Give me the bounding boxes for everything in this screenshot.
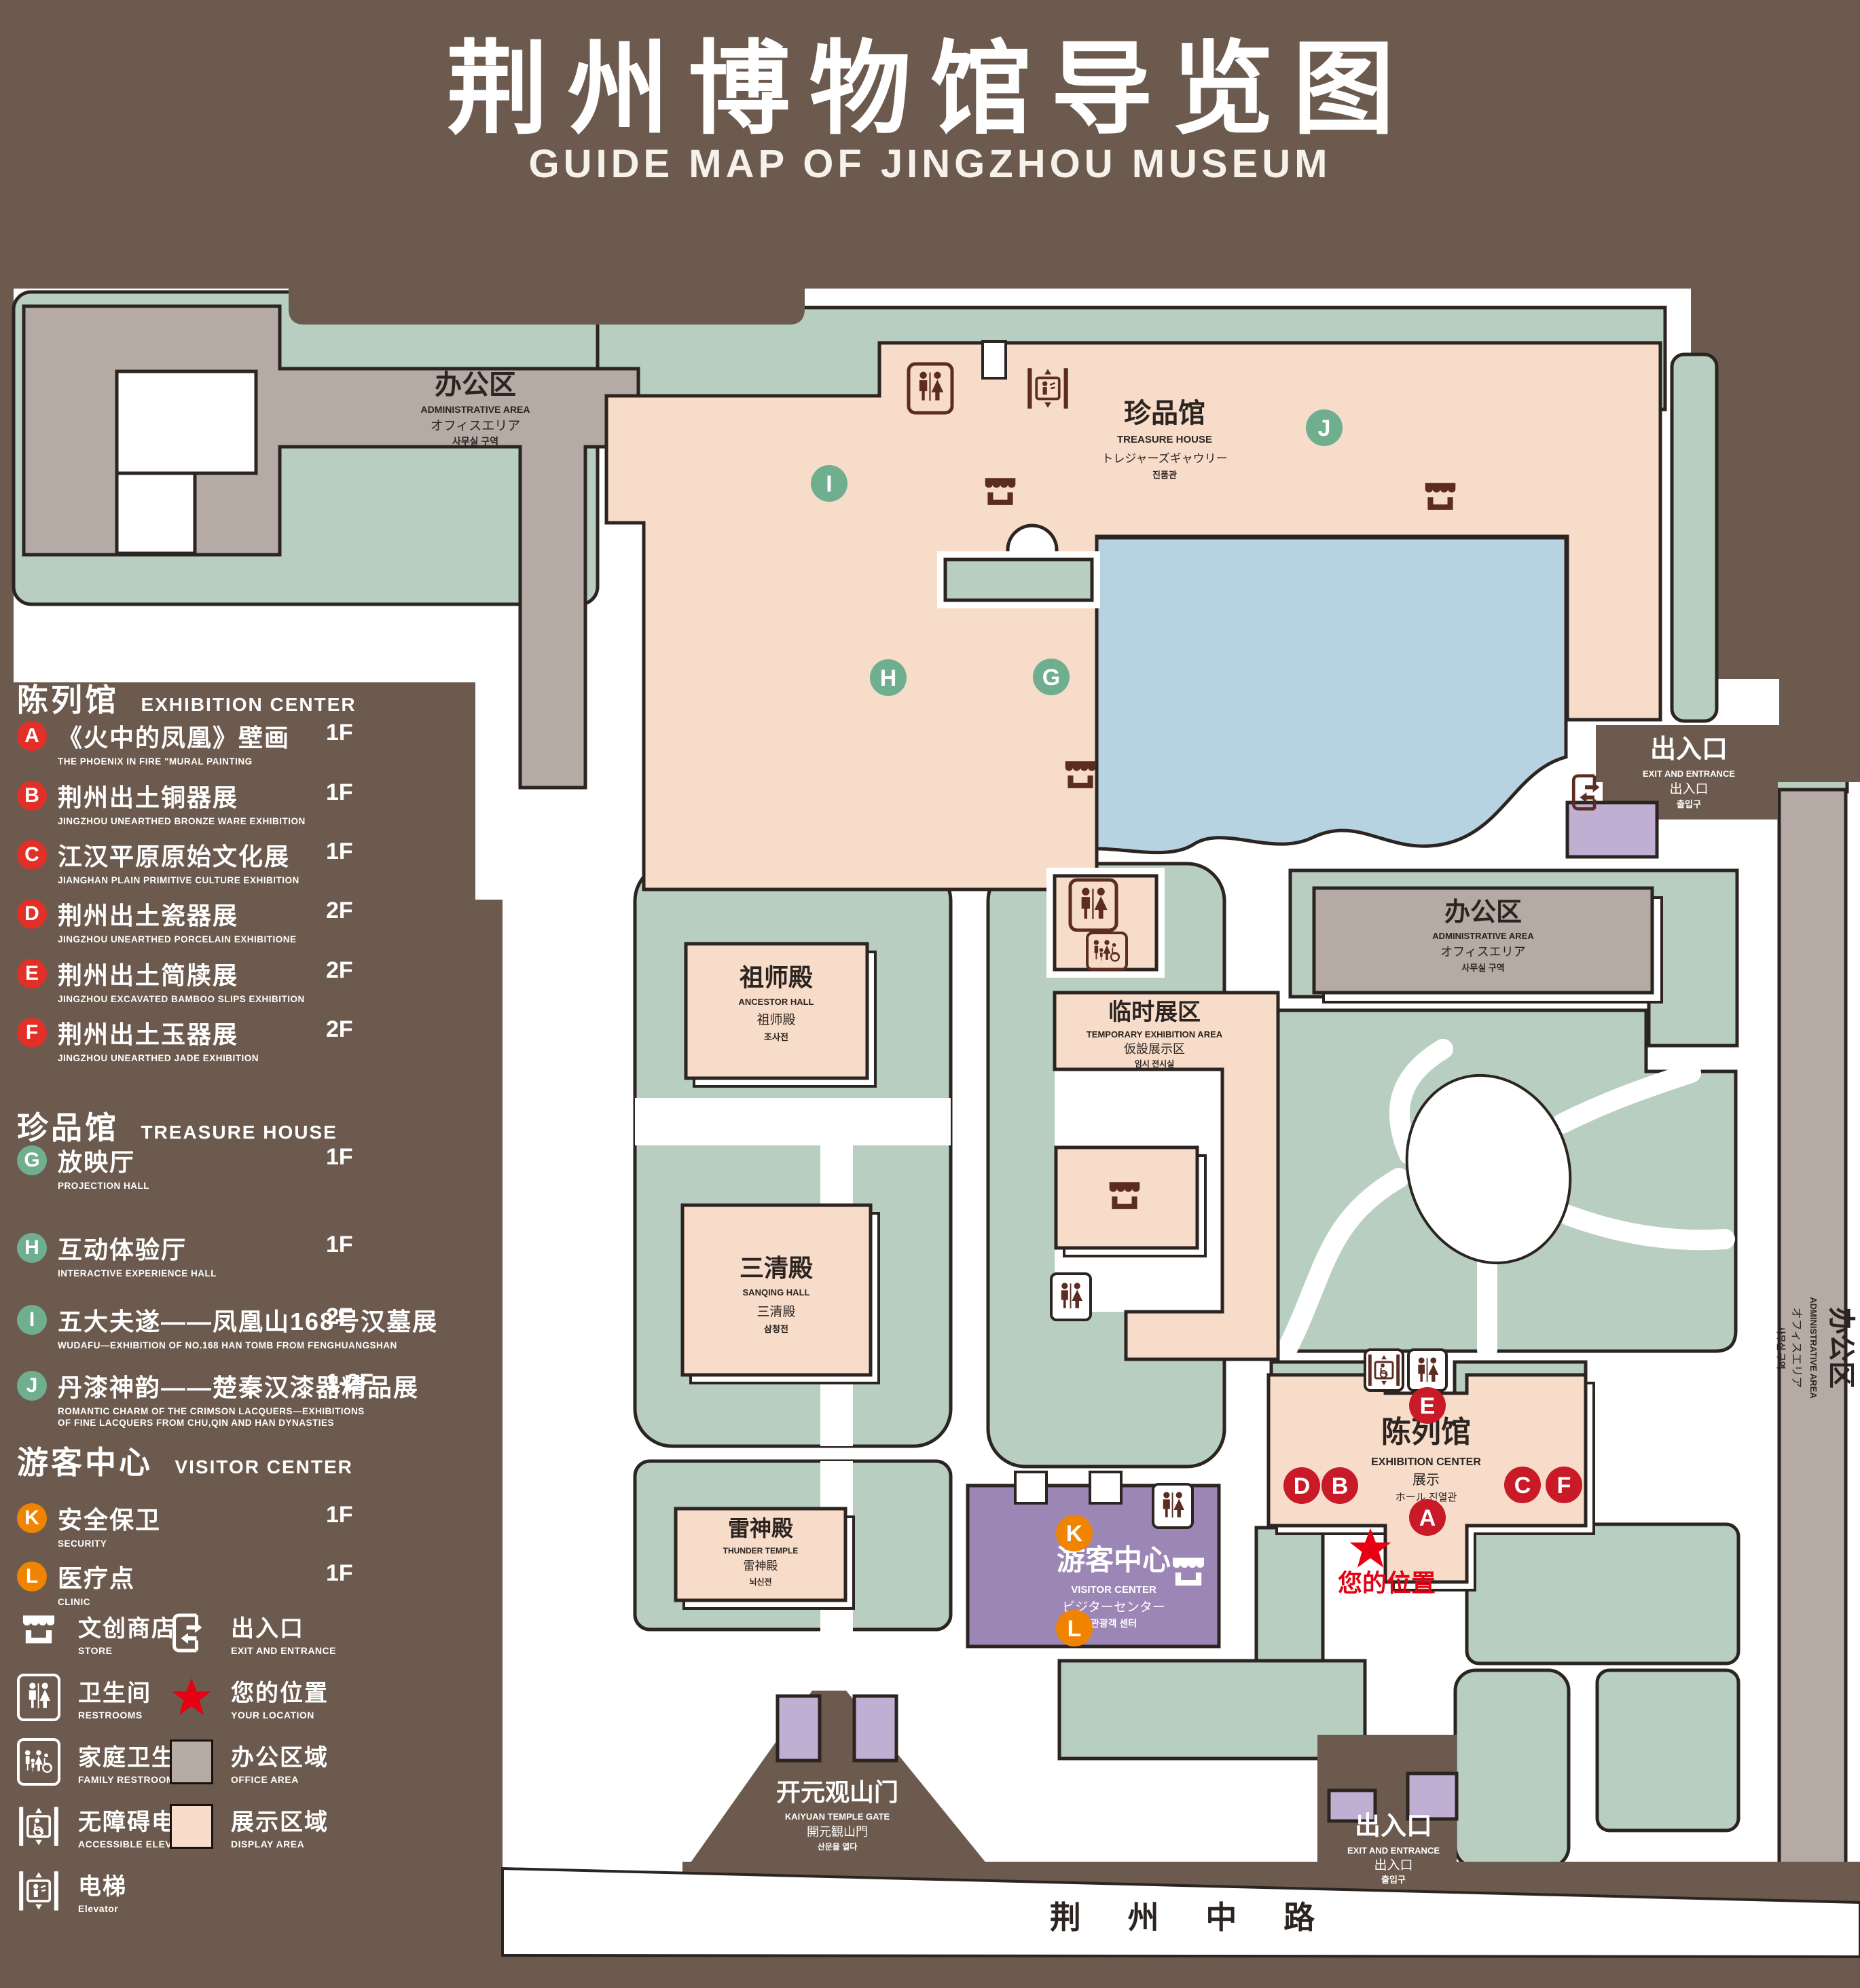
icon-label-zh: 电梯 [78,1868,127,1901]
item-floor: 2F [326,1016,353,1043]
item-floor: 2F [326,957,353,984]
item-en: THE PHOENIX IN FIRE "MURAL PAINTING [58,756,492,767]
admin-e-ja: オフィスエリア [1440,945,1526,959]
item-en: JINGZHOU UNEARTHED PORCELAIN EXHIBITIONE [58,934,492,944]
marker-letter: H [880,665,897,691]
item-zh: 放映厅 [58,1143,135,1178]
green-south-3 [1455,1670,1569,1867]
icon-label-en: OFFICE AREA [231,1774,329,1785]
item-en: WUDAFU—EXHIBITION OF NO.168 HAN TOMB FRO… [58,1340,492,1350]
gate-purple-right [854,1696,896,1761]
admin-strip-ko: 사무실 구역 [1776,1326,1786,1369]
marker-J: J [1306,409,1343,446]
thunder-zh: 雷神殿 [728,1516,793,1541]
item-zh: 荆州出土简牍展 [58,956,238,991]
store-icon [17,1611,60,1655]
exit-s-zh: 出入口 [1355,1812,1432,1841]
item-en: JINGZHOU UNEARTHED JADE EXHIBITION [58,1053,492,1063]
legend-exit: 出入口 EXIT AND ENTRANCE [170,1610,336,1656]
item-zh: 荆州出土铜器展 [58,778,238,813]
sanqing-ko: 삼청전 [764,1324,788,1334]
badge-F: F [17,1018,47,1048]
item-en: JINGZHOU UNEARTHED BRONZE WARE EXHIBITIO… [58,816,492,826]
restroom-icon [17,1676,60,1719]
thunder-ja: 雷神殿 [744,1560,778,1572]
icon-label-zh: 办公区域 [231,1739,329,1772]
item-en: INTERACTIVE EXPERIENCE HALL [58,1268,492,1278]
temporary-ja: 仮設展示区 [1124,1042,1185,1056]
display-area-swatch [170,1805,213,1848]
marker-letter: J [1318,416,1331,441]
gate-purple-left [778,1696,820,1761]
legend-restroom: 卫生间 RESTROOMS [17,1674,151,1720]
marker-D: D [1283,1467,1320,1504]
item-floor: 2F [326,1304,353,1330]
badge-J: J [17,1371,47,1401]
marker-letter: A [1419,1505,1436,1531]
legend-item-H: H 互动体验厅 1F INTERACTIVE EXPERIENCE HALL [17,1230,492,1278]
family-restroom-icon [17,1740,60,1784]
sanqing-zh: 三清殿 [740,1254,813,1282]
marker-letter: B [1332,1473,1349,1499]
exit-ne-ja: 出入口 [1669,781,1708,796]
legend-office-area: 办公区域 OFFICE AREA [170,1739,329,1785]
gate-ja: 開元観山門 [807,1825,868,1839]
accessible-elevator-icon [17,1805,60,1848]
marker-A: A [1409,1499,1446,1536]
icon-label-en: RESTROOMS [78,1710,151,1720]
marker-letter: G [1042,665,1060,691]
section-title-zh: 陈列馆 [17,682,119,718]
road-label: 荆 州 中 路 [1050,1900,1334,1935]
green-east-strip [1672,354,1717,721]
legend-item-G: G 放映厅 1F PROJECTION HALL [17,1143,492,1191]
elevator-icon [17,1869,60,1913]
icon-label-zh: 出入口 [231,1610,336,1643]
your-location-label: 您的位置 [1338,1569,1436,1597]
admin-strip-en: ADMINISTRATIVE AREA [1808,1297,1819,1399]
item-floor: 1F [326,779,353,806]
marker-letter: I [826,471,832,497]
marker-F: F [1546,1467,1582,1503]
marker-letter: D [1294,1473,1311,1499]
marker-G: G [1033,659,1070,695]
item-zh: 荆州出土玉器展 [58,1015,238,1050]
exit-ne-ko: 출입구 [1677,799,1701,809]
legend-section-visitor: 游客中心 VISITOR CENTER [17,1438,353,1483]
admin-e-zh: 办公区 [1444,898,1522,927]
treasure-en: TREASURE HOUSE [1117,434,1212,445]
item-zh: 医疗点 [58,1559,135,1594]
legend-item-E: E 荆州出土简牍展 2F JINGZHOU EXCAVATED BAMBOO S… [17,956,492,1004]
pond-terrace [945,559,1092,600]
admin-nw-courtyard-1 [117,371,256,473]
item-en: JINGZHOU EXCAVATED BAMBOO SLIPS EXHIBITI… [58,994,492,1004]
ancestor-ko: 조사전 [764,1032,788,1042]
badge-B: B [17,781,47,811]
building-store-block [1056,1147,1197,1248]
gate-en: KAIYUAN TEMPLE GATE [785,1811,890,1822]
marker-E: E [1409,1387,1446,1424]
badge-A: A [17,721,47,751]
visitor-en: VISITOR CENTER [1071,1584,1156,1596]
sanqing-ja: 三清殿 [756,1304,795,1319]
item-floor: 2F [326,898,353,924]
marker-I: I [811,465,847,502]
exit-s-en: EXIT AND ENTRANCE [1347,1845,1440,1856]
exit-s-ja: 出入口 [1374,1858,1412,1873]
legend-item-L: L 医疗点 1F CLINIC [17,1559,492,1607]
visitor-notch-1 [1015,1472,1046,1503]
item-en: CLINIC [58,1597,492,1607]
section-title-en: VISITOR CENTER [175,1456,352,1477]
legend-store: 文创商店 STORE [17,1610,176,1656]
item-zh: 荆州出土瓷器展 [58,896,238,932]
section-title-en: EXHIBITION CENTER [141,694,356,715]
legend-section-exhibition: 陈列馆 EXHIBITION CENTER [17,676,357,720]
exit-s-ko: 출입구 [1381,1875,1406,1885]
badge-K: K [17,1503,47,1533]
badge-G: G [17,1145,47,1175]
item-en: ROMANTIC CHARM OF THE CRIMSON LACQUERS—E… [58,1406,492,1416]
treasure-ko: 진품관 [1152,470,1177,480]
admin-nw-zh: 办公区 [435,370,516,400]
item-zh: 五大夫遂——凤凰山168号汉墓展 [58,1302,438,1338]
admin-nw-courtyard-2 [117,473,195,553]
item-zh: 江汉平原原始文化展 [58,837,290,872]
badge-H: H [17,1233,47,1263]
treasure-zh: 珍品馆 [1124,399,1205,428]
green-south-4 [1597,1670,1738,1830]
admin-strip-zh: 办公区 [1826,1307,1856,1388]
admin-nw-ja: オフィスエリア [431,419,521,433]
badge-C: C [17,840,47,870]
marker-L: L [1056,1610,1093,1646]
item-floor: 1-2F [326,1369,373,1396]
admin-e-ko: 사무실 구역 [1461,963,1504,973]
marker-C: C [1504,1467,1541,1503]
legend-item-J: J 丹漆神韵——楚秦汉漆器精品展 1-2F ROMANTIC CHARM OF … [17,1368,492,1428]
item-en: JIANGHAN PLAIN PRIMITIVE CULTURE EXHIBIT… [58,875,492,885]
marker-letter: E [1420,1393,1436,1419]
badge-D: D [17,899,47,929]
marker-letter: K [1066,1521,1083,1547]
item-floor: 1F [326,839,353,865]
location-star-icon [170,1676,213,1719]
temporary-en: TEMPORARY EXHIBITION AREA [1087,1029,1223,1039]
marker-B: B [1321,1467,1358,1504]
item-en2: OF FINE LACQUERS FROM CHU,QIN AND HAN DY… [58,1418,492,1428]
item-floor: 1F [326,1232,353,1258]
admin-strip-ja: オフィスエリア [1790,1308,1803,1388]
badge-L: L [17,1562,47,1591]
exhibition-ja: 展示 [1412,1473,1440,1488]
item-floor: 1F [326,1502,353,1528]
legend-item-D: D 荆州出土瓷器展 2F JINGZHOU UNEARTHED PORCELAI… [17,896,492,944]
admin-e-en: ADMINISTRATIVE AREA [1432,931,1534,941]
icon-label-zh: 卫生间 [78,1674,151,1708]
visitor-ko: 관광객 센터 [1091,1618,1137,1629]
item-floor: 1F [326,720,353,746]
icon-label-zh: 文创商店 [78,1610,176,1643]
exit-ne-en: EXIT AND ENTRANCE [1643,769,1735,779]
item-en: SECURITY [58,1539,492,1549]
badge-E: E [17,959,47,989]
icon-label-zh: 您的位置 [231,1674,329,1708]
icon-label-en: Elevator [78,1903,127,1914]
icon-label-en: STORE [78,1645,176,1656]
temporary-ko: 임시 전시실 [1135,1059,1175,1069]
legend-display-area: 展示区域 DISPLAY AREA [170,1803,329,1849]
ne-exit-purple [1567,803,1657,857]
marker-letter: F [1557,1473,1571,1498]
item-en: PROJECTION HALL [58,1181,492,1191]
icon-label-zh: 展示区域 [231,1803,329,1837]
gate-ko: 산문을 열다 [818,1841,858,1852]
section-title-zh: 珍品馆 [17,1110,119,1145]
treasure-door-notch [983,342,1006,378]
item-zh: 《火中的凤凰》壁画 [58,718,290,754]
item-zh: 互动体验厅 [58,1230,187,1266]
ancestor-zh: 祖师殿 [740,963,813,991]
thunder-ko: 뇌신전 [749,1577,771,1587]
icon-label-en: EXIT AND ENTRANCE [231,1645,336,1656]
item-floor: 1F [326,1144,353,1171]
treasure-ja: トレジャーズギャウリー [1101,452,1227,465]
legend-item-F: F 荆州出土玉器展 2F JINGZHOU UNEARTHED JADE EXH… [17,1015,492,1063]
exit-ne-zh: 出入口 [1650,735,1728,764]
sanqing-en: SANQING HALL [743,1287,810,1297]
temporary-zh: 临时展区 [1108,999,1201,1025]
green-south-1 [1256,1528,1323,1662]
ancestor-en: ANCESTOR HALL [739,997,814,1007]
admin-nw-ko: 사무실 구역 [452,436,498,447]
legend-item-I: I 五大夫遂——凤凰山168号汉墓展 2F WUDAFU—EXHIBITION … [17,1302,492,1350]
section-title-zh: 游客中心 [17,1445,153,1480]
exit-icon [170,1611,213,1655]
green-south-2 [1467,1524,1738,1663]
marker-K: K [1056,1515,1093,1551]
icon-label-en: DISPLAY AREA [231,1839,329,1849]
legend-item-K: K 安全保卫 1F SECURITY [17,1501,492,1549]
gate-zh: 开元观山门 [776,1778,898,1806]
legend-item-C: C 江汉平原原始文化展 1F JIANGHAN PLAIN PRIMITIVE … [17,837,492,885]
item-zh: 安全保卫 [58,1501,161,1536]
marker-H: H [870,659,907,696]
section-title-en: TREASURE HOUSE [141,1122,337,1143]
marker-letter: C [1514,1473,1531,1498]
visitor-notch-2 [1090,1472,1121,1503]
north-road-notch [289,284,805,325]
exhibition-en: EXHIBITION CENTER [1371,1456,1481,1468]
item-floor: 1F [326,1560,353,1587]
legend-item-A: A 《火中的凤凰》壁画 1F THE PHOENIX IN FIRE "MURA… [17,718,492,767]
office-area-swatch [170,1740,213,1784]
thunder-en: THUNDER TEMPLE [723,1546,799,1556]
legend-elevator: 电梯 Elevator [17,1868,127,1914]
legend-item-B: B 荆州出土铜器展 1F JINGZHOU UNEARTHED BRONZE W… [17,778,492,826]
ancestor-ja: 祖师殿 [756,1012,795,1027]
icon-label-en: YOUR LOCATION [231,1710,329,1720]
marker-letter: L [1068,1616,1082,1642]
legend-section-treasure: 珍品馆 TREASURE HOUSE [17,1103,338,1148]
legend-your-location: 您的位置 YOUR LOCATION [170,1674,329,1720]
badge-I: I [17,1305,47,1335]
admin-nw-en: ADMINISTRATIVE AREA [421,404,530,415]
pond [1097,538,1566,853]
